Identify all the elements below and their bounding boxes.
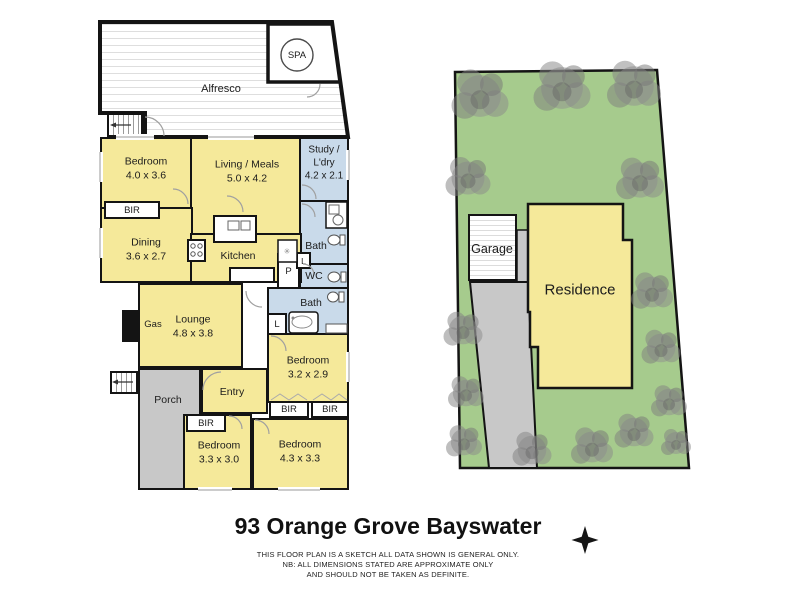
closet-label: P xyxy=(285,266,291,277)
porch-stairs xyxy=(110,371,138,394)
closet-linen1: L xyxy=(296,252,311,269)
closet-bir4: BIR xyxy=(186,414,226,432)
floorplan-page: BIR BIR BIR BIR P L L xyxy=(0,0,800,600)
disclaimer-line: NB: ALL DIMENSIONS STATED ARE APPROXIMAT… xyxy=(48,560,728,570)
label-lounge: Lounge4.8 x 3.8 xyxy=(173,313,213,340)
label-gas: Gas xyxy=(144,319,161,331)
closet-bir2: BIR xyxy=(269,401,309,418)
label-kitchen: Kitchen xyxy=(220,250,255,264)
label-wc: WC xyxy=(305,270,323,284)
label-living: Living / Meals5.0 x 4.2 xyxy=(211,158,283,185)
page-title: 93 Orange Grove Bayswater xyxy=(48,513,728,540)
alfresco-stairs xyxy=(107,113,143,137)
closet-linen2: L xyxy=(267,313,287,335)
room-living xyxy=(190,137,302,235)
label-bath2: Bath xyxy=(300,297,322,311)
fixtures-overlay: ✳ xyxy=(0,0,800,600)
base-drawing xyxy=(0,0,800,600)
label-bedroom2: Bedroom3.2 x 2.9 xyxy=(287,354,330,381)
label-dining: Dining3.6 x 2.7 xyxy=(126,236,166,263)
label-study: Study / L'dry4.2 x 2.1 xyxy=(301,144,347,183)
label-residence: Residence xyxy=(545,280,616,300)
label-bath1: Bath xyxy=(305,240,327,254)
label-spa: SPA xyxy=(288,50,306,62)
closet-bir3: BIR xyxy=(311,401,349,418)
closet-label: BIR xyxy=(124,205,140,216)
label-alfresco: Alfresco xyxy=(201,82,241,96)
label-bedroom4: Bedroom4.3 x 3.3 xyxy=(279,438,322,465)
closet-label: BIR xyxy=(198,418,214,429)
disclaimer-line: AND SHOULD NOT BE TAKEN AS DEFINITE. xyxy=(48,570,728,580)
closet-label: L xyxy=(274,319,279,330)
label-entry: Entry xyxy=(220,386,245,400)
driveway xyxy=(470,282,537,468)
disclaimer-text: THIS FLOOR PLAN IS A SKETCH ALL DATA SHO… xyxy=(48,550,728,580)
label-bedroom3: Bedroom3.3 x 3.0 xyxy=(198,439,241,466)
label-bedroom1: Bedroom4.0 x 3.6 xyxy=(125,155,168,182)
label-garage: Garage xyxy=(471,241,513,257)
label-porch: Porch xyxy=(154,394,181,408)
closet-bir1: BIR xyxy=(104,201,160,219)
closet-label: BIR xyxy=(322,404,338,415)
disclaimer-line: THIS FLOOR PLAN IS A SKETCH ALL DATA SHO… xyxy=(48,550,728,560)
driveway-connector xyxy=(517,230,528,284)
closet-label: L xyxy=(301,256,306,266)
closet-label: BIR xyxy=(281,404,297,415)
gas-heater-box xyxy=(122,310,140,342)
